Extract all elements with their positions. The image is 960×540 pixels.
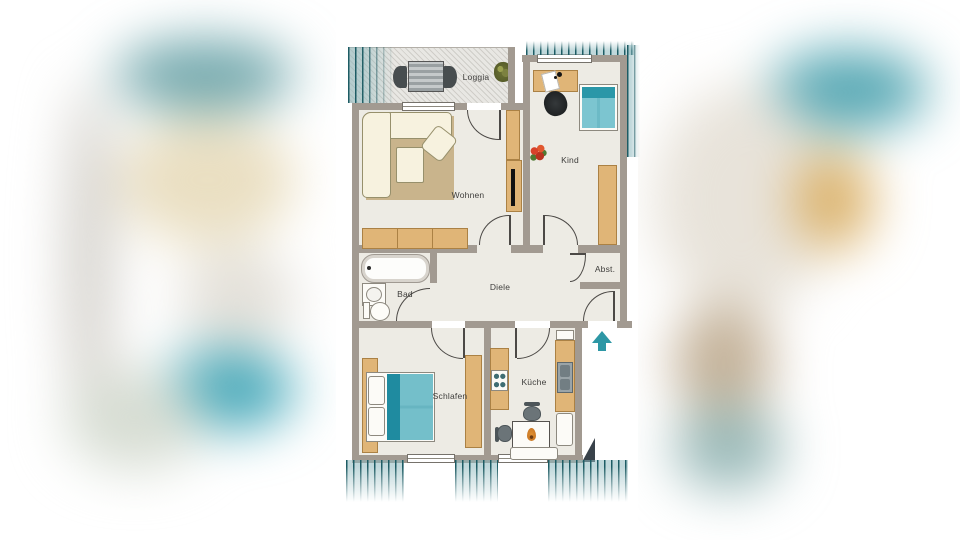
- curtain-bottom-left: [346, 460, 404, 502]
- bench-vertical: [556, 413, 573, 446]
- kitchen-chair-top-seat: [523, 406, 541, 421]
- loggia-table: [408, 61, 444, 92]
- kind-wardrobe: [598, 165, 617, 245]
- kitchen-sink-icon: [557, 362, 573, 393]
- wall: [617, 321, 632, 328]
- floorplan-card: Loggia: [336, 0, 638, 540]
- wall: [352, 321, 432, 328]
- door-leaf-loggia: [499, 110, 501, 140]
- room-label-wohnen: Wohnen: [440, 190, 496, 201]
- corner-shadow: [582, 438, 595, 462]
- door-leaf-entry: [613, 291, 615, 321]
- kind-bed-pillow: [582, 87, 615, 98]
- wall: [575, 328, 582, 463]
- wall: [455, 103, 467, 110]
- room-label-loggia: Loggia: [450, 72, 502, 83]
- wall: [580, 282, 627, 289]
- toilet-bowl: [370, 302, 390, 321]
- wall: [465, 321, 515, 328]
- pillow: [368, 407, 385, 436]
- pillow: [368, 376, 385, 405]
- blur-blobs: [638, 0, 960, 540]
- wall: [352, 103, 402, 110]
- room-label-abstellraum: Abst.: [584, 264, 626, 275]
- bed-blanket: [400, 374, 433, 440]
- kitchen-chair-left-seat: [497, 425, 512, 442]
- tall-cabinet: [506, 110, 520, 160]
- kitchen-appliance: [556, 330, 574, 340]
- blurred-backdrop-left: [0, 0, 346, 540]
- sink-basin: [366, 287, 382, 302]
- tv-icon: [511, 169, 515, 206]
- blur-blobs: [0, 0, 346, 540]
- window-loggia: [402, 102, 455, 111]
- curtain-kind-right: [627, 45, 640, 157]
- wall: [430, 253, 437, 283]
- floorplan: Loggia: [346, 40, 634, 502]
- curtain-kind-top: [526, 41, 634, 55]
- stove-icon: [491, 370, 508, 391]
- sideboard: [362, 228, 468, 249]
- room-label-diele: Diele: [478, 282, 522, 293]
- candle-icon: [527, 428, 536, 441]
- loggia-chair-left: [393, 66, 407, 88]
- door-leaf-wohnen: [509, 215, 511, 245]
- kind-bed-blanket: [582, 98, 615, 128]
- window-kind: [537, 54, 592, 63]
- wall: [352, 103, 359, 463]
- curtain-bottom-middle: [455, 460, 498, 502]
- room-label-schlafen: Schlafen: [422, 391, 478, 402]
- screenshot-canvas: Loggia: [0, 0, 960, 540]
- flower-icon: [529, 143, 547, 163]
- curtain-bottom-right: [548, 460, 628, 502]
- faucet-icon: [367, 266, 371, 270]
- desk-lamp-icon: [557, 72, 562, 77]
- entry-arrow-icon: [591, 331, 613, 353]
- blurred-backdrop-right: [638, 0, 960, 540]
- toilet-tank: [363, 302, 370, 319]
- bathtub-inner: [365, 258, 426, 279]
- coffee-table: [396, 147, 424, 183]
- door-leaf-schlafen: [463, 328, 465, 358]
- room-label-kueche: Küche: [512, 377, 556, 388]
- bench-horizontal: [510, 447, 558, 460]
- loggia-railing: [348, 47, 394, 103]
- wall: [523, 245, 543, 253]
- bed-runner: [387, 374, 400, 440]
- sofa-vertical: [362, 112, 391, 198]
- window-schlafen: [407, 454, 455, 463]
- room-label-kind: Kind: [548, 155, 592, 166]
- room-label-bad: Bad: [391, 289, 419, 300]
- wall: [550, 321, 588, 328]
- wall: [508, 47, 515, 103]
- wall: [578, 245, 620, 253]
